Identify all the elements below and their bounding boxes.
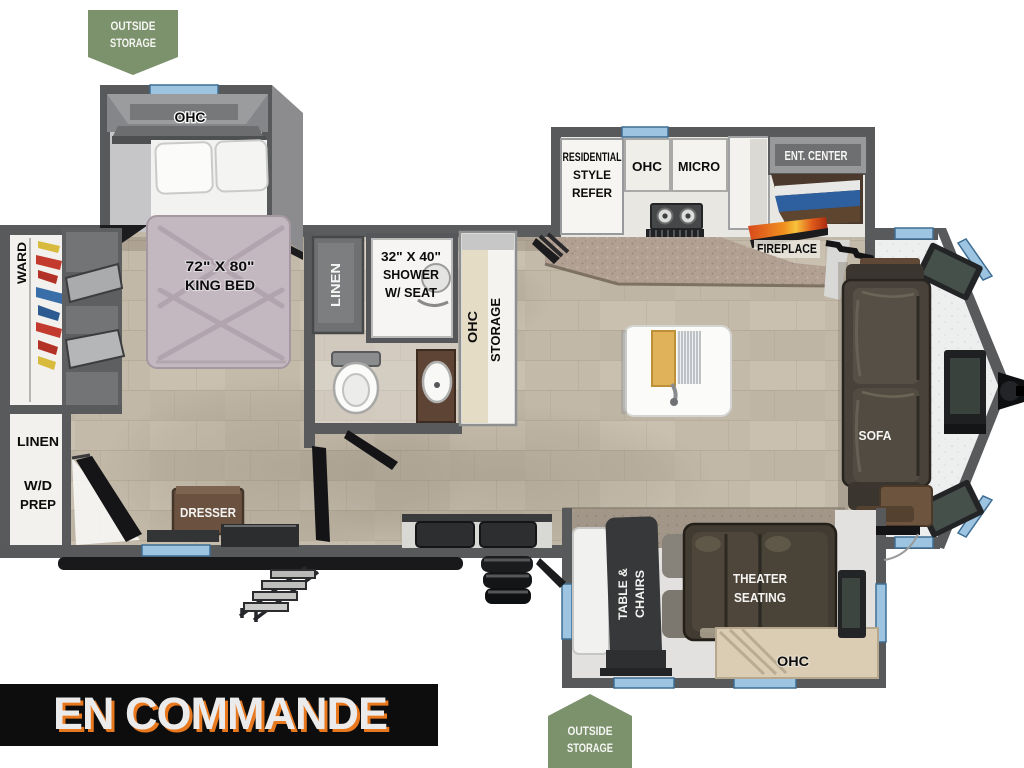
svg-text:SHOWER: SHOWER <box>383 267 439 282</box>
svg-text:RESIDENTIAL: RESIDENTIAL <box>563 150 622 164</box>
svg-text:REFER: REFER <box>572 186 612 200</box>
svg-text:OHC: OHC <box>777 654 809 669</box>
svg-text:CHAIRS: CHAIRS <box>633 570 647 618</box>
svg-text:LINEN: LINEN <box>329 263 343 307</box>
svg-text:LINEN: LINEN <box>17 434 59 449</box>
svg-text:TABLE &: TABLE & <box>616 568 630 620</box>
svg-text:OHC: OHC <box>632 159 662 174</box>
svg-text:EN COMMANDE: EN COMMANDE <box>53 688 387 739</box>
svg-text:STYLE: STYLE <box>573 168 611 182</box>
svg-text:W/ SEAT: W/ SEAT <box>385 285 437 300</box>
svg-text:OUTSIDE: OUTSIDE <box>568 725 613 738</box>
svg-text:STORAGE: STORAGE <box>567 742 613 755</box>
svg-text:STORAGE: STORAGE <box>489 298 503 362</box>
svg-text:SOFA: SOFA <box>859 428 893 443</box>
svg-text:OUTSIDE: OUTSIDE <box>111 20 156 33</box>
svg-text:DRESSER: DRESSER <box>180 505 236 520</box>
svg-text:SEATING: SEATING <box>734 590 786 605</box>
svg-text:PREP: PREP <box>20 497 56 512</box>
svg-text:W/D: W/D <box>24 478 52 493</box>
svg-text:ENT. CENTER: ENT. CENTER <box>785 149 848 163</box>
svg-text:WARD: WARD <box>15 242 29 284</box>
svg-text:32" X 40": 32" X 40" <box>381 249 441 264</box>
svg-text:MICRO: MICRO <box>678 159 720 174</box>
svg-text:STORAGE: STORAGE <box>110 37 156 50</box>
svg-text:OHC: OHC <box>466 311 480 343</box>
svg-text:KING BED: KING BED <box>185 278 255 293</box>
svg-text:72" X 80": 72" X 80" <box>186 259 255 274</box>
svg-text:THEATER: THEATER <box>733 571 787 586</box>
svg-text:OHC: OHC <box>175 110 206 125</box>
